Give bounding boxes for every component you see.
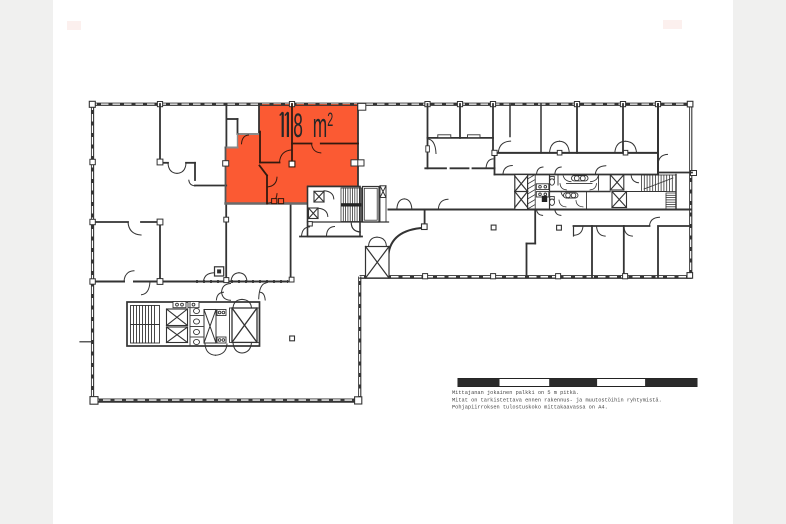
svg-text:Pohjapiirroksen tulostuskoko m: Pohjapiirroksen tulostuskoko mittakaavas… <box>452 405 608 411</box>
svg-text:8: 8 <box>293 105 303 144</box>
svg-text:Mitat on tarkistettava ennen r: Mitat on tarkistettava ennen rakennus- j… <box>452 397 662 403</box>
svg-text:m: m <box>313 105 327 144</box>
svg-text:2: 2 <box>327 110 333 131</box>
svg-text:Mittajanan jokainen palkki on: Mittajanan jokainen palkki on 5 m pitkä. <box>452 390 579 396</box>
